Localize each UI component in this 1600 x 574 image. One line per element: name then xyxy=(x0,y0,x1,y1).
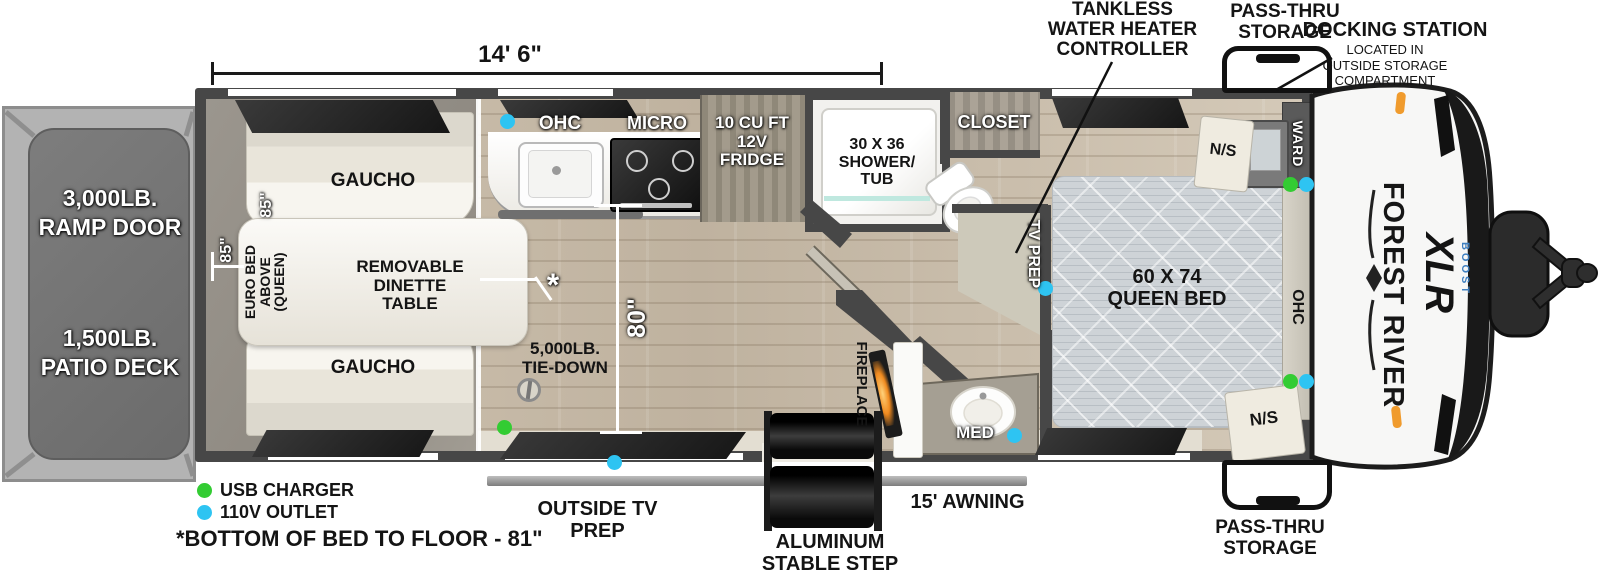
dim-garage-length-label: 14' 6" xyxy=(420,42,600,68)
window-gap xyxy=(498,89,613,96)
legend-usb-label: USB CHARGER xyxy=(220,481,440,501)
kitchen-ohc-label: OHC xyxy=(520,114,600,135)
docking-station-sub: LOCATED IN OUTSIDE STORAGE COMPARTMENT xyxy=(1305,42,1465,89)
tankless-callout: TANKLESS WATER HEATER CONTROLLER xyxy=(1030,0,1215,60)
garage-window-top xyxy=(235,100,450,133)
tie-down-label: 5,000LB. TIE-DOWN xyxy=(505,340,625,377)
gaucho-top-label: GAUCHO xyxy=(298,171,448,192)
110v-outlet-dot xyxy=(1299,374,1314,389)
legend-outlet-dot xyxy=(197,505,212,520)
garage-window-bottom xyxy=(252,430,434,457)
window-gap xyxy=(228,89,456,96)
med-label: MED xyxy=(945,424,1005,443)
gaucho-bottom-label: GAUCHO xyxy=(298,358,448,379)
dim-bed-length-label: 85" xyxy=(258,186,286,224)
brand-series: BOOST xyxy=(1458,240,1472,298)
110v-outlet-dot xyxy=(1007,428,1022,443)
burner xyxy=(672,150,694,172)
bedroom-window-top xyxy=(1052,98,1189,128)
dim-line-garage-length xyxy=(212,72,882,75)
burner xyxy=(648,178,670,200)
floorplan-canvas: 3,000LB. RAMP DOOR 1,500LB. PATIO DECK xyxy=(0,0,1600,574)
pass-thru-bottom-slot xyxy=(1256,496,1300,505)
usb-charger-dot xyxy=(1283,177,1298,192)
dim-tick xyxy=(211,62,214,85)
dim-interior-width-label: 80" xyxy=(615,293,659,343)
ramp-door-label: 3,000LB. RAMP DOOR xyxy=(30,184,190,242)
sink-faucet xyxy=(552,166,561,175)
brand-make: FOREST RIVER xyxy=(1379,155,1407,435)
stable-step-label: ALUMINUM STABLE STEP xyxy=(738,531,922,574)
brand-model: XLR xyxy=(1422,233,1456,313)
fireplace-label: FIREPLACE xyxy=(851,329,871,439)
bedroom-tv-screen xyxy=(1250,129,1281,171)
dim-tick-80-top xyxy=(594,204,642,207)
legend-outlet-label: 110V OUTLET xyxy=(220,503,440,523)
pass-thru-top-slot xyxy=(1256,54,1300,63)
legend-usb-dot xyxy=(197,483,212,498)
patio-deck-label: 1,500LB. PATIO DECK xyxy=(30,324,190,382)
entry-door-slab xyxy=(893,342,923,458)
usb-charger-dot xyxy=(497,420,512,435)
awning-rail xyxy=(487,476,1027,486)
fridge-label: 10 CU FT 12V FRIDGE xyxy=(702,114,802,170)
shower-label: 30 X 36 SHOWER/ TUB xyxy=(822,136,932,189)
bedroom-ohc-label: OHC xyxy=(1287,280,1307,334)
queen-bed-label: 60 X 74 QUEEN BED xyxy=(1077,266,1257,310)
step-rail-right xyxy=(874,411,882,531)
awning-label: 15' AWNING xyxy=(880,491,1055,513)
dinette-label: REMOVABLE DINETTE TABLE xyxy=(330,258,490,314)
burner xyxy=(626,150,648,172)
footnote-bed-height: *BOTTOM OF BED TO FLOOR - 81" xyxy=(176,527,596,551)
ward-label: WARD xyxy=(1288,118,1308,170)
usb-charger-dot xyxy=(1283,374,1298,389)
cooktop-stove xyxy=(610,138,704,212)
dim-tick xyxy=(880,62,883,85)
micro-label: MICRO xyxy=(612,114,702,134)
pass-thru-bottom-label: PASS-THRU STORAGE xyxy=(1190,518,1350,560)
tub-waterline xyxy=(824,196,930,201)
outside-tv-window xyxy=(500,432,746,459)
110v-outlet-dot xyxy=(1299,177,1314,192)
euro-bed-label: EURO BED ABOVE (QUEEN) xyxy=(243,230,313,334)
docking-station-title: DOCKING STATION xyxy=(1300,19,1490,41)
ramp-door-panel xyxy=(28,128,190,460)
entry-step-2 xyxy=(770,466,874,528)
110v-outlet-dot xyxy=(607,455,622,470)
closet-label: CLOSET xyxy=(946,113,1042,133)
asterisk-mark: * xyxy=(538,268,568,303)
window-gap xyxy=(1052,89,1192,96)
dim-tick-80-bottom xyxy=(600,431,642,434)
bedroom-window-bottom xyxy=(1035,428,1187,455)
sink-basin xyxy=(528,150,592,198)
110v-outlet-dot xyxy=(500,114,515,129)
tv-prep-label: TV PREP xyxy=(1022,209,1044,299)
